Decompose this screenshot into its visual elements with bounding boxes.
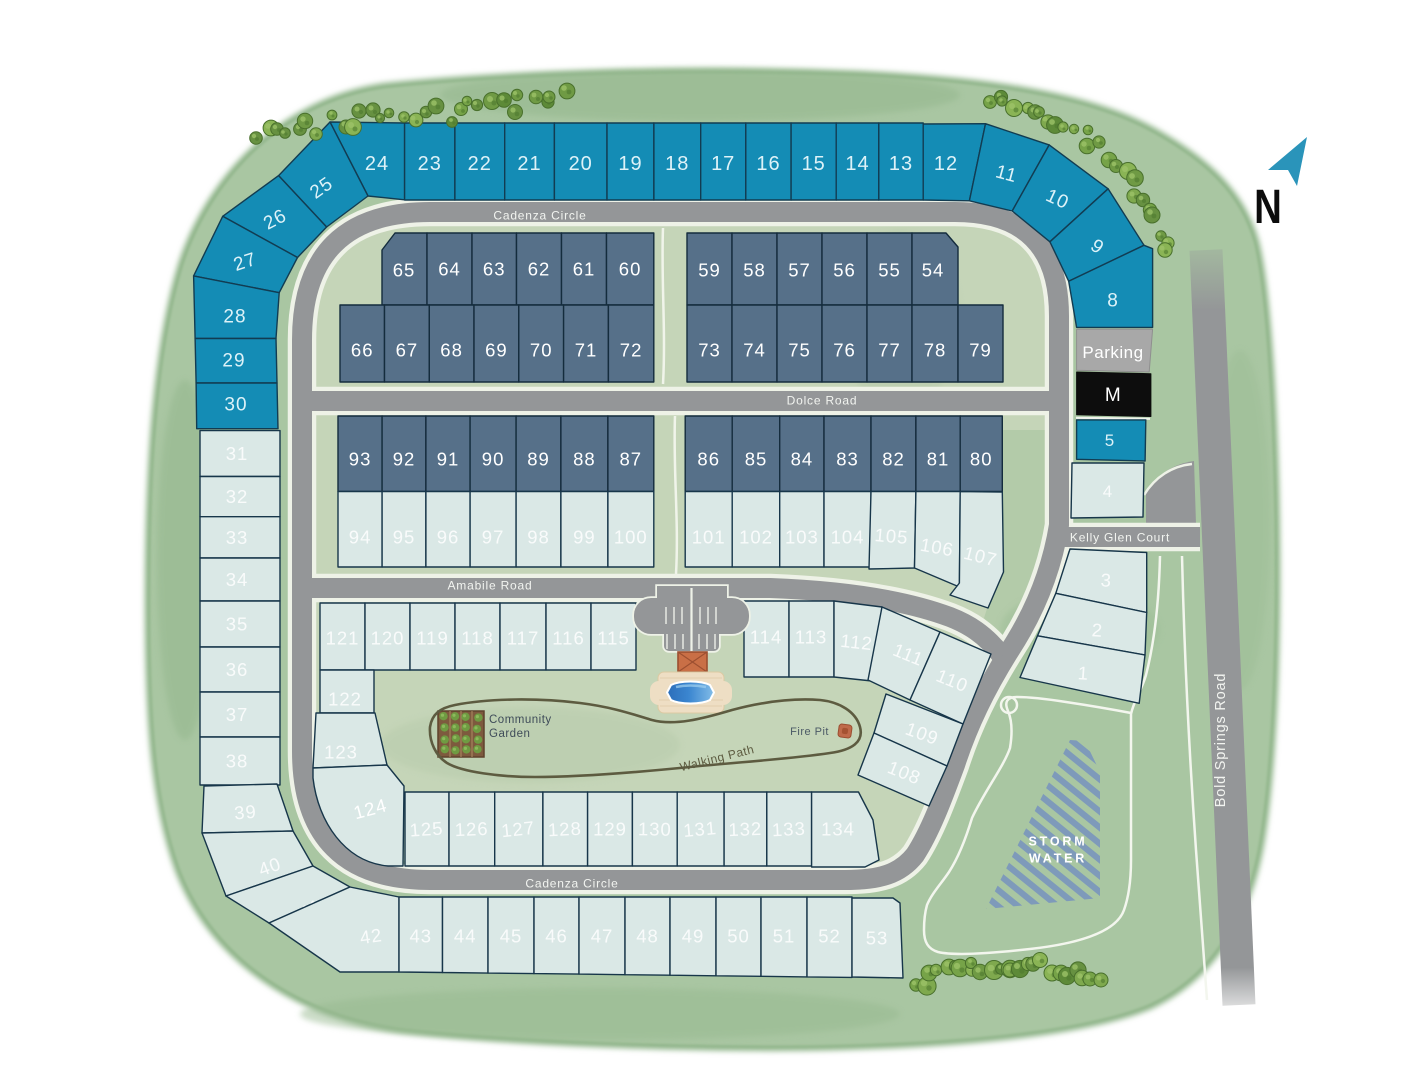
svg-text:86: 86 (697, 449, 720, 470)
svg-text:52: 52 (818, 926, 841, 947)
svg-text:61: 61 (573, 259, 596, 280)
svg-text:131: 131 (682, 817, 718, 841)
svg-text:92: 92 (393, 449, 416, 470)
svg-text:97: 97 (482, 527, 505, 548)
svg-text:Fire Pit: Fire Pit (790, 726, 829, 738)
svg-text:45: 45 (500, 926, 523, 947)
svg-text:71: 71 (575, 340, 598, 361)
svg-text:18: 18 (665, 153, 689, 175)
svg-text:126: 126 (454, 818, 489, 840)
svg-text:Dolce Road: Dolce Road (787, 394, 858, 408)
svg-text:49: 49 (682, 926, 705, 947)
svg-text:103: 103 (785, 527, 819, 548)
svg-text:51: 51 (773, 926, 796, 947)
svg-text:Garden: Garden (489, 728, 530, 740)
svg-text:128: 128 (547, 818, 582, 841)
svg-text:48: 48 (636, 926, 659, 947)
svg-text:Amabile Road: Amabile Road (448, 579, 533, 593)
svg-text:85: 85 (745, 449, 768, 470)
svg-text:89: 89 (527, 449, 550, 470)
svg-text:N: N (1254, 181, 1282, 234)
svg-text:117: 117 (507, 628, 540, 649)
svg-text:105: 105 (874, 524, 910, 548)
svg-text:133: 133 (771, 818, 806, 841)
svg-text:56: 56 (833, 260, 856, 281)
svg-text:82: 82 (882, 449, 905, 470)
svg-text:43: 43 (410, 926, 433, 947)
svg-text:114: 114 (750, 627, 783, 648)
svg-text:121: 121 (326, 628, 360, 649)
svg-text:87: 87 (620, 449, 643, 470)
svg-text:93: 93 (349, 449, 372, 470)
svg-text:47: 47 (591, 926, 614, 947)
svg-text:88: 88 (573, 449, 596, 470)
svg-text:104: 104 (831, 527, 865, 548)
svg-text:Bold Springs Road: Bold Springs Road (1213, 673, 1229, 808)
svg-text:100: 100 (614, 527, 648, 548)
svg-text:35: 35 (226, 614, 249, 635)
svg-text:120: 120 (371, 628, 405, 649)
svg-text:129: 129 (593, 819, 627, 840)
svg-text:80: 80 (970, 449, 993, 470)
svg-text:34: 34 (226, 569, 249, 590)
svg-text:127: 127 (500, 817, 536, 841)
svg-text:3: 3 (1100, 569, 1112, 591)
svg-text:32: 32 (226, 486, 249, 507)
svg-text:96: 96 (437, 527, 460, 548)
svg-text:31: 31 (226, 443, 249, 464)
svg-text:65: 65 (393, 260, 416, 281)
svg-text:17: 17 (711, 153, 735, 175)
svg-text:123: 123 (324, 742, 358, 763)
svg-text:95: 95 (393, 527, 416, 548)
svg-text:53: 53 (866, 928, 889, 949)
svg-text:Parking: Parking (1082, 343, 1143, 362)
svg-text:102: 102 (739, 527, 773, 548)
svg-text:54: 54 (922, 260, 945, 281)
svg-text:2: 2 (1091, 619, 1104, 641)
svg-text:115: 115 (597, 628, 630, 649)
svg-text:66: 66 (351, 340, 374, 361)
svg-text:118: 118 (461, 628, 494, 649)
svg-text:STORM: STORM (1029, 835, 1088, 849)
svg-text:22: 22 (468, 153, 492, 175)
svg-text:78: 78 (924, 340, 947, 361)
svg-text:74: 74 (743, 340, 766, 361)
svg-text:125: 125 (409, 817, 444, 840)
svg-text:23: 23 (418, 153, 442, 175)
svg-text:28: 28 (223, 307, 246, 328)
svg-text:14: 14 (845, 153, 869, 175)
svg-text:132: 132 (728, 818, 763, 840)
svg-text:81: 81 (927, 449, 950, 470)
svg-text:4: 4 (1103, 482, 1113, 501)
svg-text:5: 5 (1105, 431, 1115, 450)
svg-text:77: 77 (878, 340, 901, 361)
svg-text:46: 46 (545, 926, 568, 947)
svg-text:Cadenza Circle: Cadenza Circle (493, 209, 586, 223)
svg-text:119: 119 (416, 628, 449, 649)
svg-text:73: 73 (698, 340, 721, 361)
svg-text:1: 1 (1077, 662, 1090, 684)
svg-text:42: 42 (358, 924, 383, 948)
svg-text:33: 33 (226, 527, 249, 548)
svg-text:76: 76 (833, 340, 856, 361)
svg-text:83: 83 (836, 449, 859, 470)
svg-text:15: 15 (802, 153, 826, 175)
svg-text:19: 19 (618, 153, 642, 175)
svg-text:29: 29 (222, 351, 245, 372)
svg-text:75: 75 (788, 340, 811, 361)
svg-text:44: 44 (454, 926, 477, 947)
svg-text:38: 38 (226, 751, 249, 772)
svg-text:79: 79 (969, 340, 992, 361)
svg-text:WATER: WATER (1029, 852, 1087, 866)
svg-text:113: 113 (795, 627, 828, 648)
svg-text:98: 98 (527, 527, 550, 548)
svg-text:55: 55 (878, 260, 901, 281)
svg-text:50: 50 (727, 926, 750, 947)
svg-text:69: 69 (485, 340, 508, 361)
svg-text:90: 90 (482, 449, 505, 470)
svg-text:134: 134 (821, 819, 855, 840)
svg-text:91: 91 (437, 449, 460, 470)
svg-text:30: 30 (224, 395, 247, 416)
svg-text:94: 94 (349, 527, 372, 548)
svg-text:Cadenza Circle: Cadenza Circle (525, 877, 618, 891)
svg-text:39: 39 (233, 801, 257, 824)
svg-text:59: 59 (698, 260, 721, 281)
svg-text:72: 72 (620, 340, 643, 361)
svg-text:101: 101 (692, 527, 726, 548)
svg-text:Kelly Glen Court: Kelly Glen Court (1070, 531, 1170, 545)
svg-text:12: 12 (934, 153, 958, 175)
svg-text:63: 63 (483, 259, 506, 280)
svg-text:Community: Community (489, 714, 552, 726)
svg-text:112: 112 (839, 630, 874, 654)
svg-text:24: 24 (365, 153, 389, 175)
svg-text:130: 130 (638, 818, 672, 840)
svg-text:37: 37 (226, 704, 249, 725)
svg-text:122: 122 (328, 689, 362, 710)
svg-text:8: 8 (1107, 291, 1119, 312)
svg-text:60: 60 (619, 259, 642, 280)
svg-text:68: 68 (440, 340, 463, 361)
svg-text:58: 58 (743, 260, 766, 281)
svg-text:57: 57 (788, 260, 811, 281)
svg-text:62: 62 (528, 259, 551, 280)
svg-text:70: 70 (530, 340, 553, 361)
svg-text:20: 20 (569, 153, 593, 175)
svg-text:64: 64 (438, 259, 461, 280)
svg-text:16: 16 (756, 153, 780, 175)
svg-text:13: 13 (889, 153, 913, 175)
svg-text:84: 84 (791, 449, 814, 470)
svg-text:99: 99 (573, 527, 596, 548)
svg-text:36: 36 (226, 659, 249, 680)
svg-text:21: 21 (517, 153, 541, 175)
svg-text:67: 67 (396, 340, 419, 361)
svg-text:116: 116 (552, 628, 585, 649)
svg-text:M: M (1105, 385, 1121, 406)
